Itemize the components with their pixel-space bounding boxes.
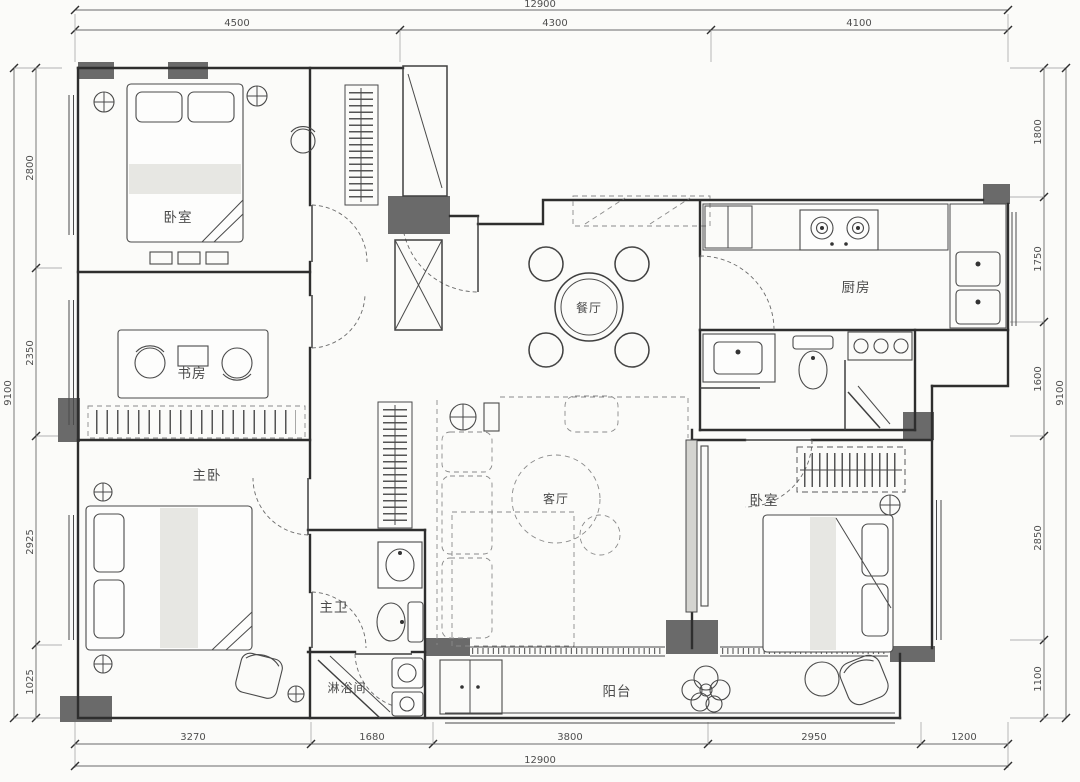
dim-left-seg2: 2350	[25, 340, 36, 365]
desk-icon	[118, 330, 268, 398]
dim-left-total: 9100	[3, 380, 14, 405]
dim-right-total: 9100	[1055, 380, 1066, 405]
toilet-icon	[793, 336, 833, 389]
dim-left-seg4: 1025	[25, 669, 36, 694]
plant-icon	[682, 666, 730, 712]
door-kitchen	[700, 256, 774, 330]
stove-icon	[800, 210, 878, 250]
bed-icon	[86, 506, 252, 650]
ceiling-light-icon	[94, 92, 114, 112]
vanity-sink-icon	[703, 334, 775, 382]
dim-left-seg3: 2925	[25, 529, 36, 554]
window-bedroom2-right	[937, 500, 942, 640]
window-kitchen-right	[1012, 212, 1016, 326]
wardrobe-study	[88, 406, 305, 438]
dim-bottom-seg4: 2950	[801, 732, 826, 743]
ceiling-light-icon	[880, 495, 900, 515]
dryer-icon	[392, 692, 423, 716]
balcony-chair-icon	[805, 662, 839, 696]
dining-chair-icon	[615, 333, 649, 367]
floor-lamp-icon	[450, 403, 499, 431]
room-study: 书房	[118, 330, 268, 398]
wardrobe-bedroom2	[797, 447, 905, 492]
balcony-chair-icon	[836, 652, 891, 709]
room-label-bedroom2: 卧室	[750, 492, 779, 509]
room-master-bedroom: 主卧	[86, 468, 304, 702]
armchair-icon	[234, 650, 285, 700]
dim-top-seg1: 4500	[224, 18, 249, 29]
dimension-bottom: 3270 1680 3800 2950 1200 12900	[71, 722, 1012, 770]
room-kitchen: 厨房	[703, 204, 1006, 328]
desk-chair-icon	[291, 127, 315, 153]
bed-icon	[763, 515, 893, 652]
door-bath2	[848, 386, 890, 428]
room-bedroom2: 卧室	[750, 492, 901, 652]
room-label-bedroom1: 卧室	[164, 209, 193, 226]
dim-bottom-seg3: 3800	[557, 732, 582, 743]
sofa-icon	[442, 432, 574, 646]
dining-chair-icon	[529, 247, 563, 281]
ceiling-light-icon	[247, 86, 267, 106]
window-bedroom1-left	[69, 95, 74, 235]
floor-lamp-icon	[288, 686, 304, 702]
dim-left-seg1: 2800	[25, 155, 36, 180]
bench-icon	[150, 252, 228, 264]
door-bedroom1	[312, 205, 367, 262]
dim-bottom-seg1: 3270	[180, 732, 205, 743]
entry-closet	[345, 85, 378, 205]
dimension-top: 12900 4500 4300 4100	[71, 0, 1012, 62]
counter-basins-icon	[848, 332, 912, 360]
room-bath2	[703, 332, 912, 389]
dim-top-seg3: 4100	[846, 18, 871, 29]
dim-top-seg2: 4300	[542, 18, 567, 29]
dim-bottom-seg2: 1680	[359, 732, 384, 743]
room-label-shower: 淋浴间	[327, 681, 366, 695]
floor-plan-drawing: 12900 4500 4300 4100 3270 1680 3800 2950…	[0, 0, 1080, 782]
room-label-master: 主卧	[193, 468, 222, 484]
room-label-study: 书房	[178, 366, 207, 382]
dim-bottom-seg5: 1200	[951, 732, 976, 743]
room-dining: 餐厅	[529, 196, 710, 367]
tv-cabinet	[686, 440, 708, 612]
room-label-balcony: 阳台	[603, 684, 632, 700]
dimension-left: 9100 2800 2350 2925 1025	[3, 64, 62, 722]
door-master	[253, 478, 308, 535]
vanity-sink-icon	[378, 542, 422, 588]
window-master-left	[69, 515, 74, 640]
dining-chair-icon	[615, 247, 649, 281]
room-label-living: 客厅	[543, 491, 569, 506]
dining-chair-icon	[529, 333, 563, 367]
room-balcony: 阳台	[440, 652, 892, 714]
ceiling-light-icon	[94, 483, 112, 501]
duct-shaft	[395, 240, 442, 330]
dim-right-seg2: 1750	[1033, 246, 1044, 271]
fridge-icon	[705, 206, 752, 248]
sliding-door-living-balcony	[470, 647, 665, 656]
dim-top-total: 12900	[524, 0, 556, 10]
dim-bottom-total: 12900	[524, 755, 556, 766]
ceiling-light-icon	[94, 655, 112, 673]
room-label-kitchen: 厨房	[842, 280, 871, 296]
room-label-dining: 餐厅	[576, 300, 602, 315]
toilet-icon	[377, 602, 423, 642]
washer-icon	[392, 658, 423, 688]
room-living: 客厅	[437, 396, 708, 646]
dim-right-seg3: 1600	[1033, 366, 1044, 391]
room-master-bath: 主卫	[320, 542, 424, 642]
floor-plan-canvas: 12900 4500 4300 4100 3270 1680 3800 2950…	[0, 0, 1080, 782]
dim-right-seg5: 1100	[1033, 666, 1044, 691]
dimension-right: 1800 1750 1600 2850 1100 9100	[1010, 64, 1070, 722]
balcony-cabinet	[440, 660, 502, 714]
door-study	[312, 295, 365, 348]
room-shower: 淋浴间	[318, 656, 423, 718]
dim-right-seg4: 2850	[1033, 525, 1044, 550]
dim-right-seg1: 1800	[1033, 119, 1044, 144]
armchair-icon	[565, 396, 618, 432]
room-label-master-bath: 主卫	[320, 600, 349, 616]
kitchen-sink-icon	[950, 204, 1006, 328]
hall-closet	[378, 402, 412, 528]
room-bedroom1: 卧室	[94, 84, 315, 264]
